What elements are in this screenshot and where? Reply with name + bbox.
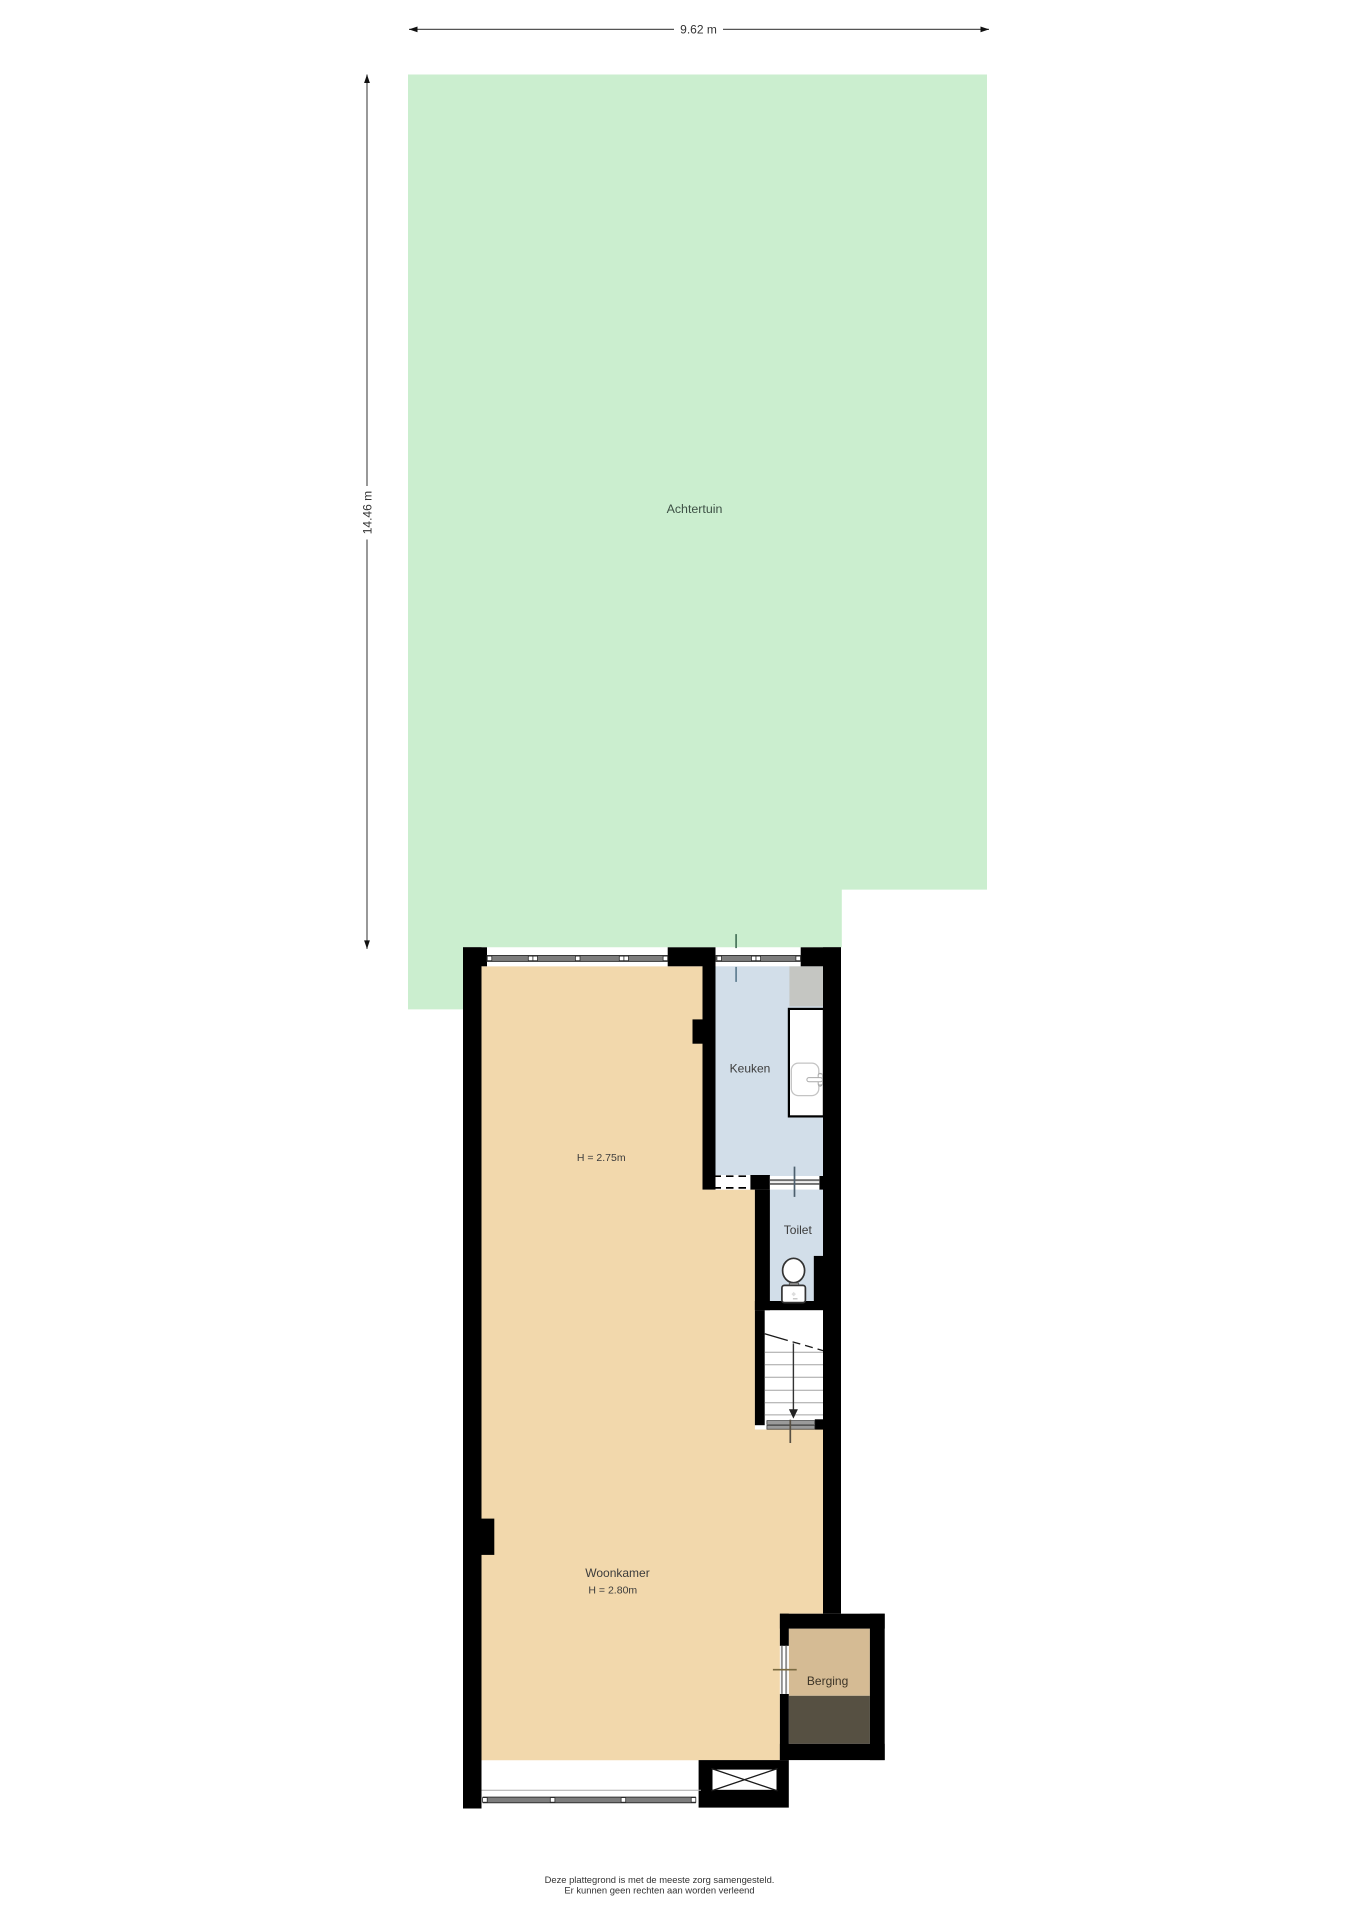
svg-text:Deze plattegrond is met de mee: Deze plattegrond is met de meeste zorg s… — [545, 1874, 775, 1885]
svg-text:Toilet: Toilet — [784, 1223, 813, 1237]
svg-text:H = 2.80m: H = 2.80m — [588, 1584, 637, 1596]
svg-text:Keuken: Keuken — [730, 1062, 771, 1076]
svg-text:Er kunnen geen rechten aan wor: Er kunnen geen rechten aan worden verlee… — [564, 1885, 754, 1896]
svg-text:Berging: Berging — [807, 1674, 848, 1688]
svg-text:14.46 m: 14.46 m — [360, 491, 374, 534]
svg-text:Achtertuin: Achtertuin — [667, 502, 723, 516]
svg-text:Woonkamer: Woonkamer — [585, 1566, 649, 1580]
svg-text:9.62 m: 9.62 m — [680, 23, 717, 37]
svg-text:H = 2.75m: H = 2.75m — [577, 1152, 626, 1164]
